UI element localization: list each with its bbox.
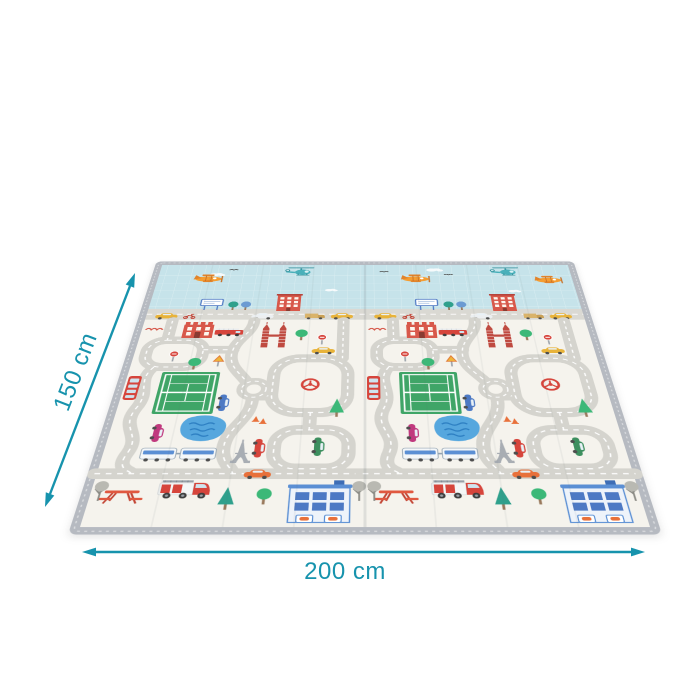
width-dimension-label: 200 cm [245, 558, 445, 584]
width-arrow [82, 548, 645, 557]
play-mat [68, 261, 662, 534]
product-image-stage: 150 cm 200 cm [0, 0, 700, 700]
height-dimension-label: 150 cm [40, 311, 111, 434]
